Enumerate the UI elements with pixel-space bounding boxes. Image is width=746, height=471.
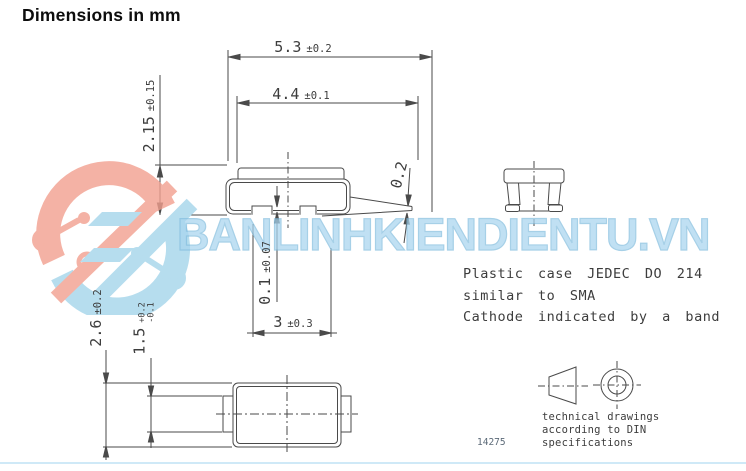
dim-overall-width: 5.3 ±0.2	[243, 38, 363, 56]
dim-lead-width: 1.5 +0.2 -0.1	[131, 289, 156, 369]
note-line: similar to SMA	[463, 286, 720, 308]
document-number: 14275	[477, 437, 506, 448]
brand-logo	[24, 160, 199, 315]
case-notes: Plastic case JEDEC DO 214 similar to SMA…	[463, 264, 720, 329]
dim-body-width: 4.4 ±0.1	[241, 85, 361, 103]
dim-foot-length: 3 ±0.3	[243, 313, 343, 331]
note-line: Cathode indicated by a band	[463, 307, 720, 329]
first-angle-projection-icon	[538, 361, 641, 409]
dim-body-depth: 2.6 ±0.2	[87, 270, 105, 366]
projection-note-line: according to DIN	[542, 424, 659, 437]
note-line: Plastic case JEDEC DO 214	[463, 264, 720, 286]
dim-standoff: 0.1 ±0.07	[256, 226, 274, 320]
projection-note-line: technical drawings	[542, 411, 659, 424]
dim-height: 2.15 ±0.15	[140, 66, 158, 166]
footer-divider	[0, 462, 746, 464]
projection-note-line: specifications	[542, 437, 659, 450]
page-title: Dimensions in mm	[22, 5, 181, 26]
technical-drawing-page: BANLINHKIENDIENTU.VN Dimensions in mm 5.…	[0, 0, 746, 471]
projection-note: technical drawings according to DIN spec…	[542, 411, 659, 450]
